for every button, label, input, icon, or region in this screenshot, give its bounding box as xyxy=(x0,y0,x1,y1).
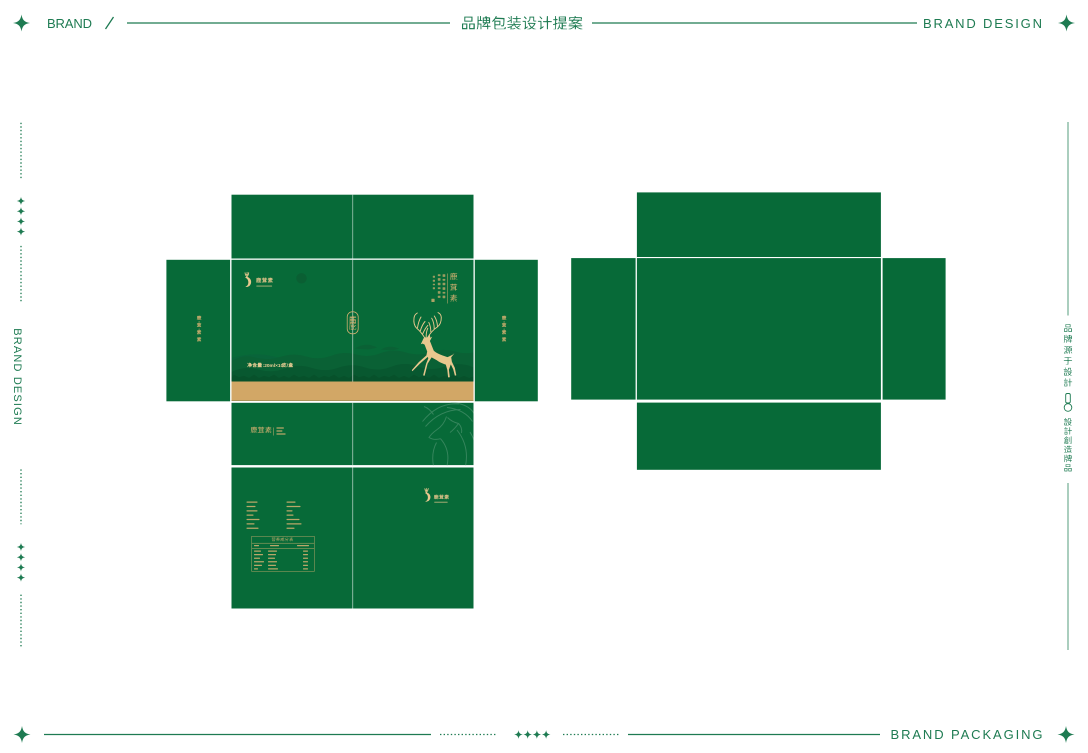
svg-text:BRAND: BRAND xyxy=(47,16,94,31)
svg-text::20ml×10: :20ml×10 xyxy=(263,363,284,369)
svg-text:BRAND DESIGN: BRAND DESIGN xyxy=(923,16,1044,31)
svg-text:BRAND DESIGN: BRAND DESIGN xyxy=(11,328,23,426)
svg-text:BRAND PACKAGING: BRAND PACKAGING xyxy=(891,727,1045,742)
